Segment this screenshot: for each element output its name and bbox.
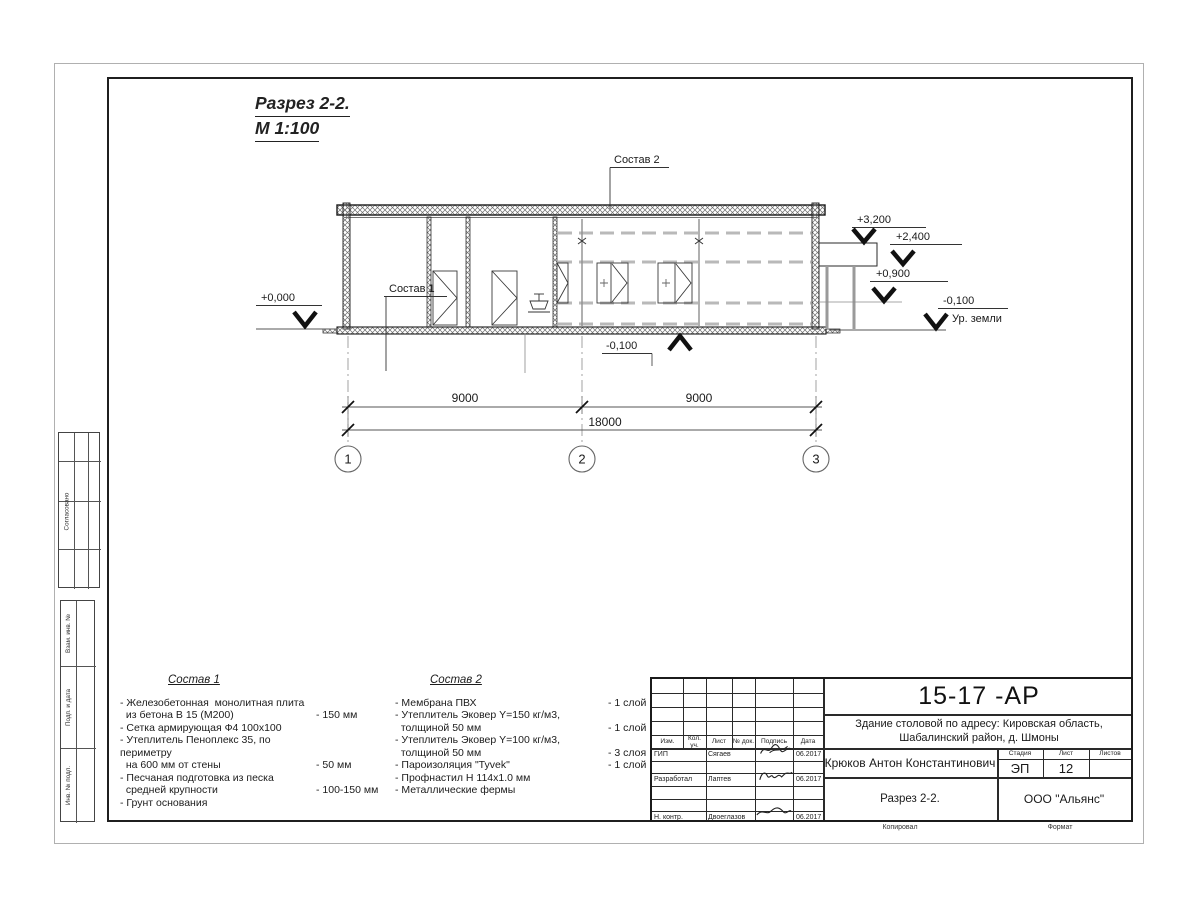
side-stamp-agreed: Согласовано [58,432,100,588]
row-role: ГИП [654,751,668,758]
right-wall [812,203,819,329]
elevation-2400: +2,400 [890,231,962,264]
elevation-marks: +0,000 +3,200 +2,400 +0,900 -0,100 [256,214,1008,366]
list-item: - Утеплитель Пеноплекс 35, по периметру … [120,734,390,772]
svg-text:Состав 1: Состав 1 [389,283,435,295]
stage-label: Стадия [997,748,1043,759]
agreed-label: Согласовано [63,492,70,530]
list-item: - Утеплитель Эковер Y=100 кг/м3, толщино… [395,734,663,759]
svg-text:-0,100: -0,100 [606,340,637,352]
vzam-label: Взам. инв. № [65,614,72,653]
sheets-value [1089,759,1131,777]
row-date: 06.2017 [796,751,821,758]
copied-label: Копировал [860,824,940,831]
doc-number: 15-17 -АР [823,679,1135,714]
composition-list-2: Состав 2 - Мембрана ПВХ- 1 слой - Утепли… [395,674,663,797]
row-name: Лаптев [708,776,731,783]
roof-slab [337,205,825,215]
col-izm: Изм. [652,735,683,748]
drawing-sheet: +0,000 +3,200 +2,400 +0,900 -0,100 [0,0,1200,900]
signature-icon [757,741,793,759]
col-ndok: № док. [732,735,755,748]
list-item: - Металлические фермы [395,784,663,797]
composition-2-title: Состав 2 [430,674,663,687]
inv-label: Инв. № подл. [65,766,72,805]
list-item: - Песчаная подготовка из песка средней к… [120,772,390,797]
format-label: Формат [1030,824,1090,831]
list-item: - Мембрана ПВХ- 1 слой [395,697,663,710]
col-kol: Кол. уч. [683,735,706,748]
row-name: Двоеглазов [708,814,745,821]
dim-span1: 9000 [452,391,479,405]
list-item: - Железобетонная монолитная плита из бет… [120,697,390,722]
dimensions: 9000 9000 18000 1 2 3 [335,336,829,472]
elevation-minus100-bottom: -0,100 [602,336,691,366]
partition [553,217,557,327]
drawing-title: Разрез 2-2. М 1:100 [255,92,350,142]
axis-3: 3 [812,452,819,467]
elevation-minus100-right: -0,100 Ур. земли [925,295,1008,328]
row-date: 06.2017 [796,814,821,821]
composition-list-1: Состав 1 - Железобетонная монолитная пли… [120,674,390,809]
axis-lines [348,336,816,445]
author-name: Крюков Антон Константинович [823,748,997,777]
porch-canopy [819,243,902,329]
window [557,263,568,303]
girt-lines [558,233,811,324]
svg-text:Состав 2: Состав 2 [614,154,660,166]
col-date: Дата [793,735,823,748]
col-list: Лист [706,735,732,748]
list-item: - Утеплитель Эковер Y=150 кг/м3, толщино… [395,709,663,734]
svg-text:+0,900: +0,900 [876,268,910,280]
partition [427,217,431,327]
podp-label: Подп. и дата [65,688,72,725]
row-name: Сягаев [708,751,731,758]
door [492,271,517,325]
list-item: - Грунт основания [120,797,390,810]
row-date: 06.2017 [796,776,821,783]
building-section [256,203,946,334]
elevation-900: +0,900 [870,268,948,301]
dim-total: 18000 [588,415,622,429]
sheet-label: Лист [1043,748,1089,759]
row-role: Н. контр. [654,814,683,821]
stage-value: ЭП [997,759,1043,777]
svg-text:+3,200: +3,200 [857,214,891,226]
sheet-value: 12 [1043,759,1089,777]
list-item: - Сетка армирующая Ф4 100х100 [120,722,390,735]
side-stamp-inventory: Взам. инв. № Подп. и дата Инв. № подл. [60,600,95,822]
window [597,263,628,303]
door [433,271,457,325]
list-item: - Профнастил Н 114х1.0 мм [395,772,663,785]
partition [466,217,470,327]
left-wall [343,203,350,329]
title-block: Изм. Кол. уч. Лист № док. Подпись Дата Г… [650,677,1133,822]
svg-text:+2,400: +2,400 [896,231,930,243]
window [658,263,692,303]
callout-sostav2: Состав 2 [610,154,669,209]
row-role: Разработал [654,776,692,783]
composition-1-title: Состав 1 [168,674,390,687]
axis-2: 2 [578,452,585,467]
axis-1: 1 [344,452,351,467]
floor-slab [337,327,826,334]
sink-symbol [528,294,550,312]
list-item: - Пароизоляция "Tyvek"- 1 слой [395,759,663,772]
signature-icon [754,803,792,821]
svg-text:-0,100: -0,100 [943,295,974,307]
svg-text:+0,000: +0,000 [261,292,295,304]
section-title: Разрез 2-2. [255,92,350,117]
axis-bubbles: 1 2 3 [335,446,829,472]
signature-icon [756,767,794,785]
sheets-label: Листов [1089,748,1131,759]
sheet-title: Разрез 2-2. [823,777,997,820]
dim-span2: 9000 [686,391,713,405]
elevation-zero: +0,000 [256,292,322,326]
company-name: ООО "Альянс" [997,777,1131,820]
scale-label: М 1:100 [255,117,319,142]
ground-level-label: Ур. земли [952,313,1002,325]
project-name: Здание столовой по адресу: Кировская обл… [823,714,1135,748]
